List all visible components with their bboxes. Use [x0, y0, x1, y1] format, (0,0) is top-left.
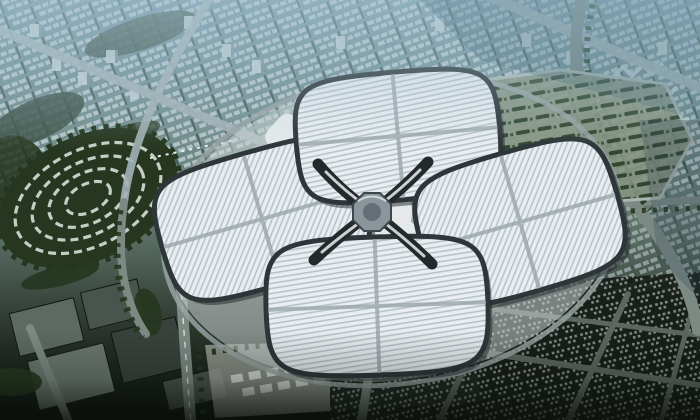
- central-hub: [353, 193, 391, 231]
- shade-bottom: [0, 330, 700, 420]
- rendering-canvas: Computer rendering, bird's-eye view: a g…: [0, 0, 700, 420]
- aerial-rendering-image: Computer rendering, bird's-eye view: a g…: [0, 0, 700, 420]
